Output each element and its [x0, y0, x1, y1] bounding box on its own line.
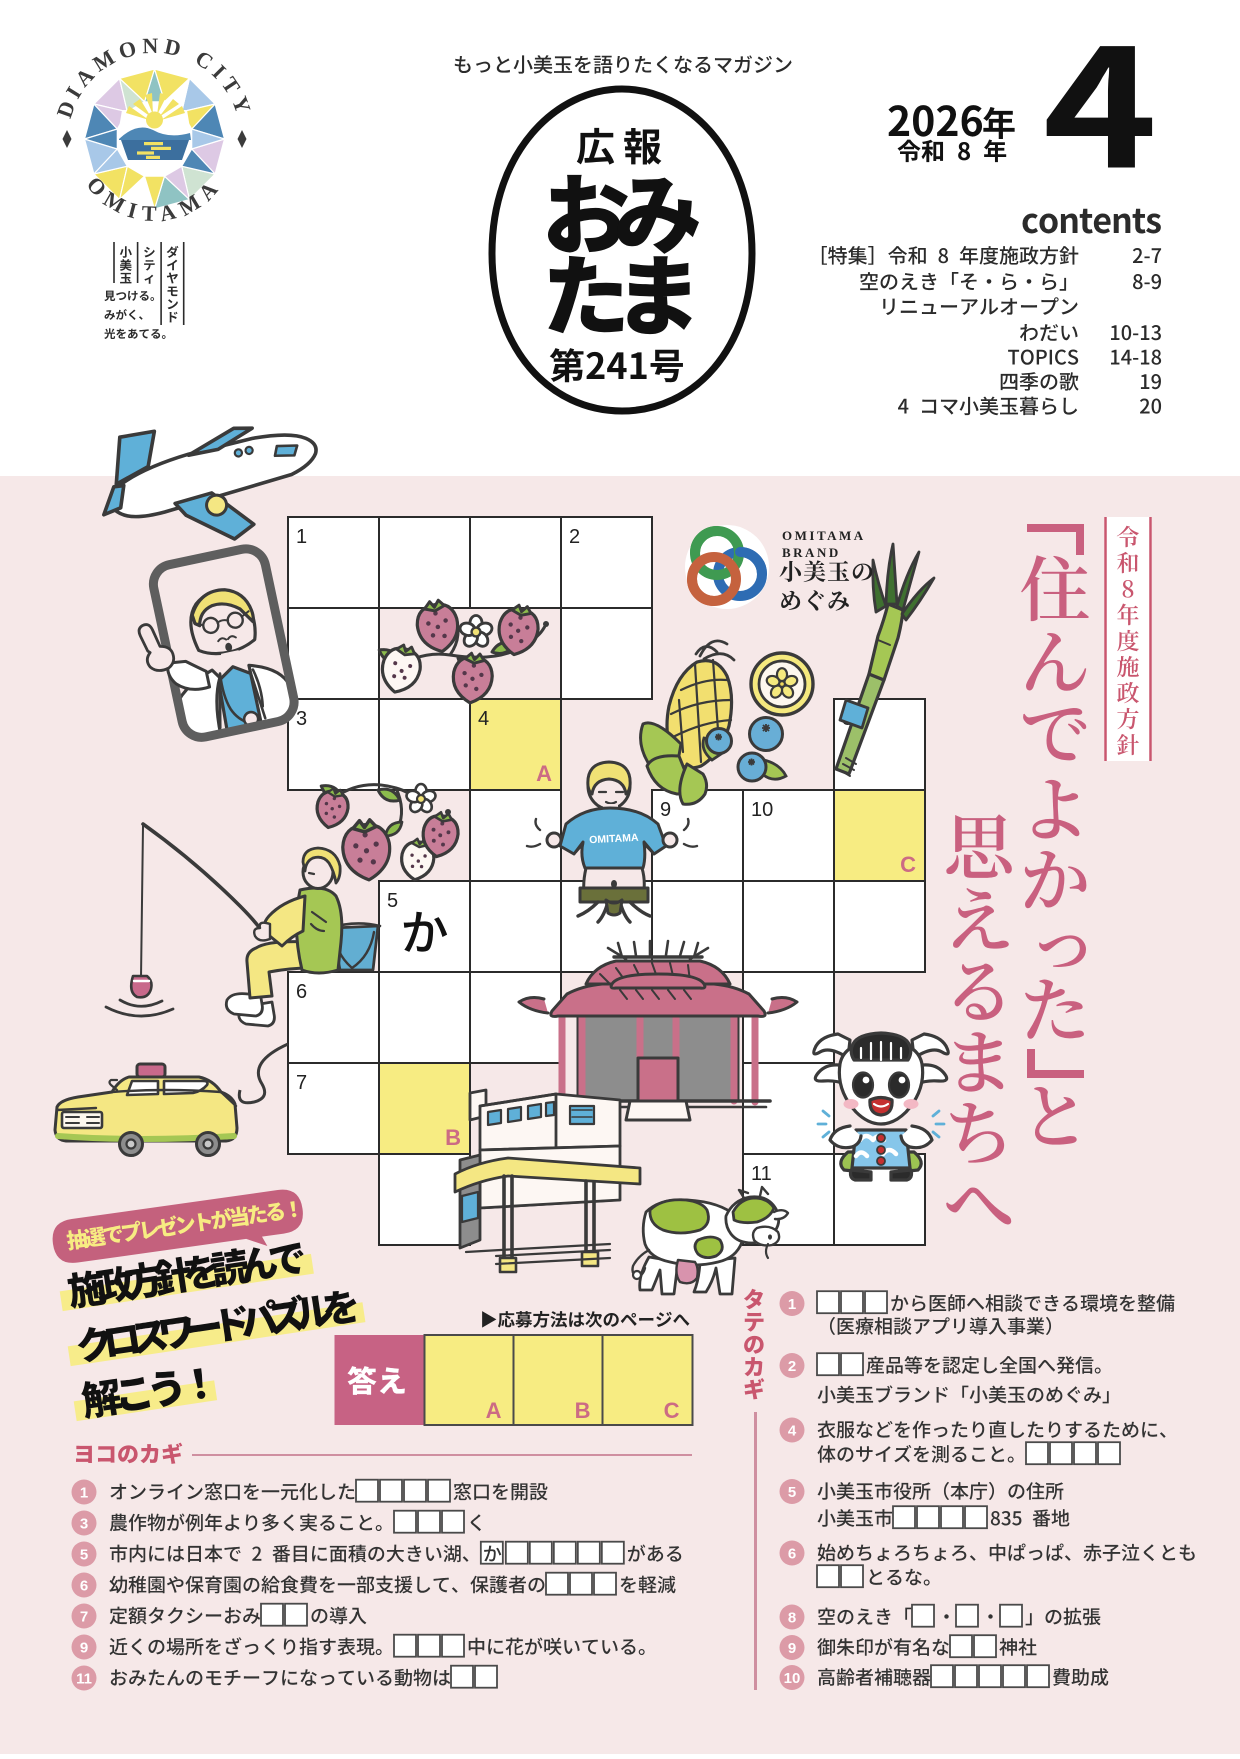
svg-text:3: 3 [80, 1516, 88, 1533]
svg-text:11: 11 [76, 1671, 92, 1688]
svg-text:4: 4 [788, 1423, 797, 1440]
svg-text:B: B [575, 1398, 591, 1423]
svg-text:2: 2 [788, 1358, 796, 1375]
svg-text:OMITAMA: OMITAMA [782, 528, 866, 543]
svg-text:5: 5 [387, 890, 398, 912]
svg-text:10: 10 [784, 1670, 801, 1687]
svg-text:A: A [486, 1398, 502, 1423]
svg-text:7: 7 [296, 1072, 307, 1094]
svg-text:6: 6 [80, 1578, 88, 1595]
svg-text:2: 2 [569, 526, 580, 548]
svg-text:9: 9 [80, 1640, 88, 1657]
svg-text:1: 1 [296, 526, 307, 548]
svg-text:7: 7 [80, 1609, 88, 1626]
svg-text:5: 5 [788, 1484, 796, 1501]
svg-text:10: 10 [751, 799, 773, 821]
svg-text:A: A [536, 761, 552, 786]
svg-text:B: B [445, 1125, 461, 1150]
svg-text:5: 5 [80, 1547, 88, 1564]
svg-text:1: 1 [788, 1296, 796, 1313]
svg-text:1: 1 [80, 1485, 88, 1502]
svg-text:BRAND: BRAND [782, 545, 841, 560]
svg-text:4: 4 [478, 708, 489, 730]
svg-text:6: 6 [296, 981, 307, 1003]
svg-text:9: 9 [788, 1640, 796, 1657]
svg-text:11: 11 [751, 1163, 772, 1185]
svg-text:C: C [900, 852, 916, 877]
svg-text:8: 8 [788, 1610, 796, 1627]
svg-text:3: 3 [296, 708, 307, 730]
svg-text:6: 6 [788, 1546, 796, 1563]
svg-text:9: 9 [660, 799, 671, 821]
svg-text:C: C [664, 1398, 680, 1423]
